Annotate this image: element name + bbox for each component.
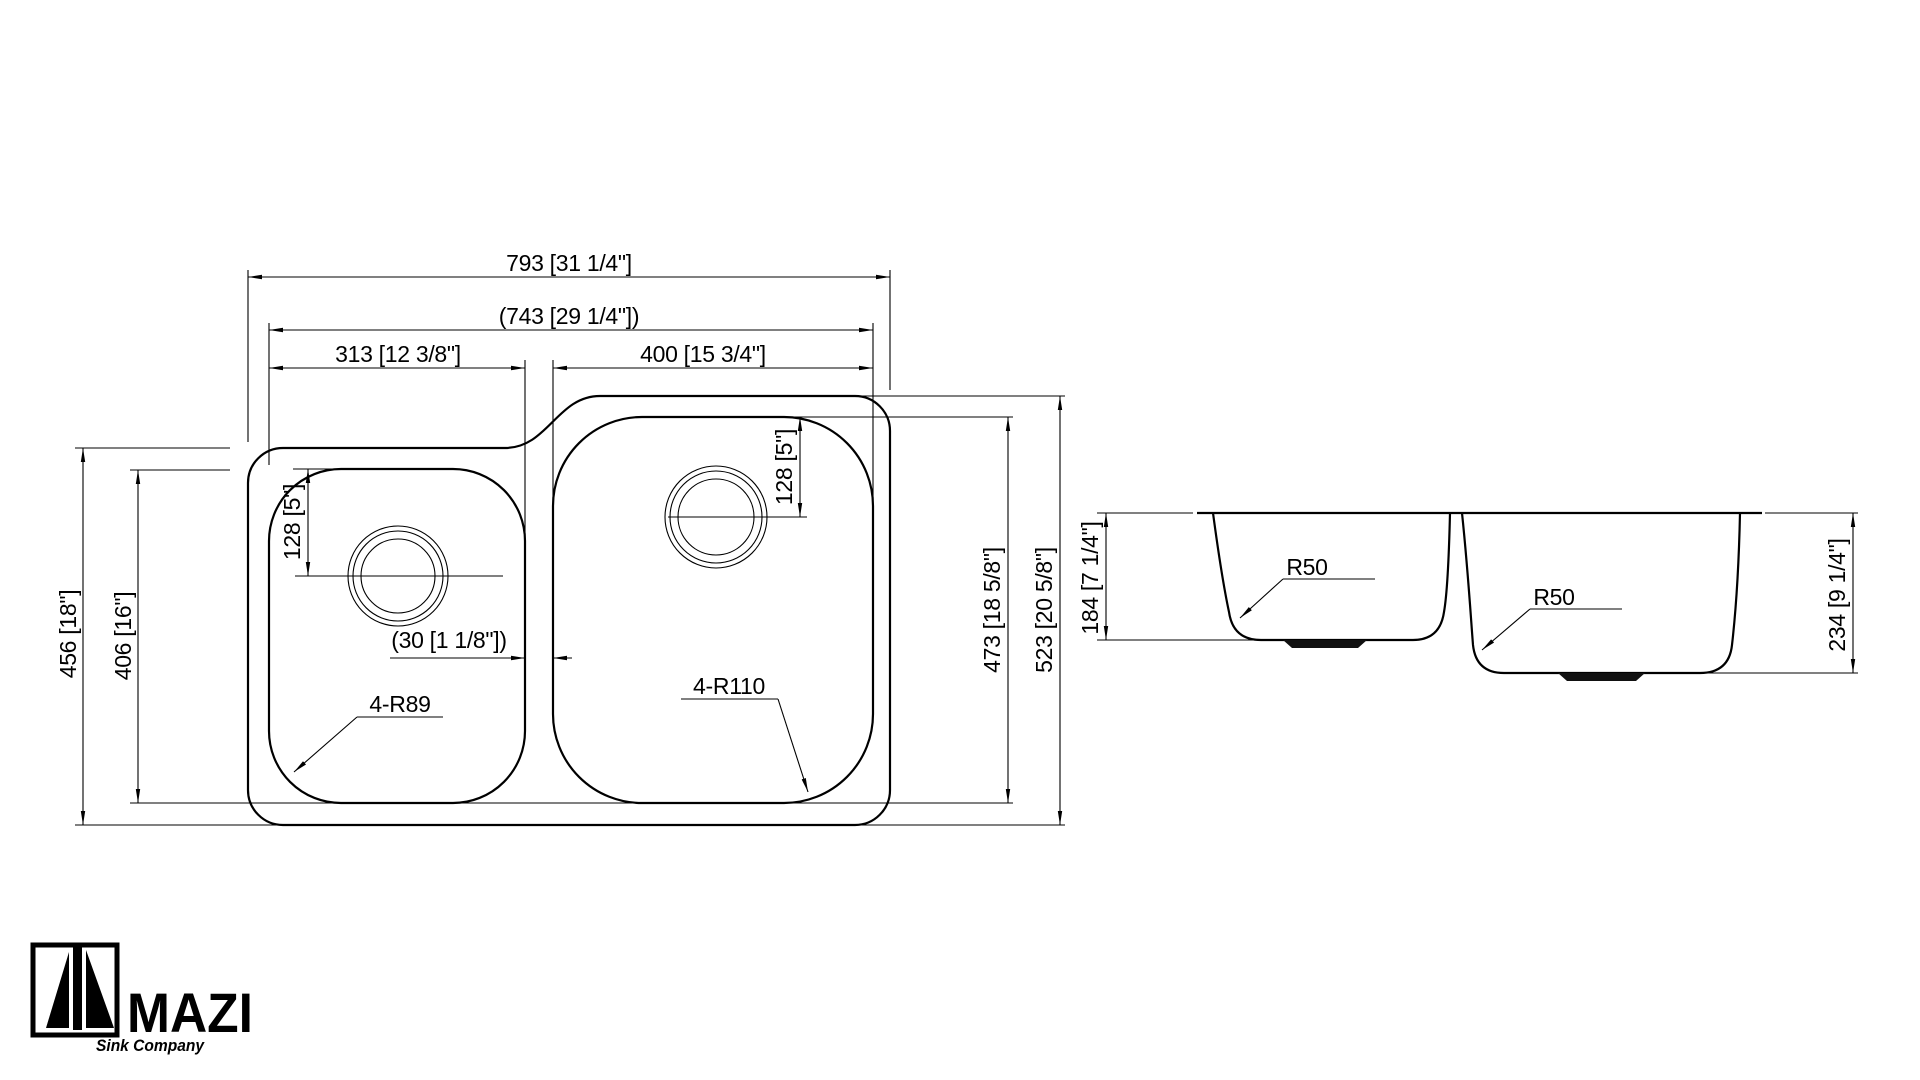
side-large-bowl-drain: [1558, 673, 1645, 681]
large-bowl-rim: [553, 417, 873, 803]
dim-overall-depth: 456 [18"]: [55, 590, 81, 679]
side-extension-lines: [1097, 513, 1858, 673]
leader-4R110: [778, 699, 808, 792]
leader-R50-right: [1482, 609, 1530, 650]
dim-small-bowl-width: 313 [12 3/8"]: [335, 341, 461, 367]
leader-4R89: [294, 717, 357, 772]
side-large-bowl-profile: [1462, 513, 1740, 673]
dim-small-drain-offset: 128 [5"]: [279, 484, 305, 560]
side-small-bowl-drain: [1283, 640, 1367, 648]
leader-R50-left: [1240, 579, 1283, 618]
side-small-bowl-profile: [1213, 513, 1450, 640]
dim-side-small-depth: 184 [7 1/4"]: [1077, 521, 1103, 634]
label-small-bowl-radius: 4-R89: [369, 691, 430, 717]
dim-overall-height: 523 [20 5/8"]: [1031, 547, 1057, 673]
front-dimension-lines: [83, 277, 1060, 825]
dim-large-drain-offset: 128 [5"]: [771, 429, 797, 505]
front-view: 793 [31 1/4"] (743 [29 1/4"]) 313 [12 3/…: [55, 250, 1065, 825]
company-logo: MAZI Sink Company: [33, 945, 253, 1055]
technical-drawing-svg: 793 [31 1/4"] (743 [29 1/4"]) 313 [12 3/…: [0, 0, 1920, 1080]
label-large-bowl-radius: 4-R110: [693, 673, 765, 699]
dim-side-large-depth: 234 [9 1/4"]: [1824, 538, 1850, 651]
dim-small-bowl-depth: 406 [16"]: [110, 592, 136, 681]
drawing-canvas: 793 [31 1/4"] (743 [29 1/4"]) 313 [12 3/…: [0, 0, 1920, 1080]
logo-name: MAZI: [127, 981, 253, 1044]
side-view: 184 [7 1/4"] 234 [9 1/4"] R50 R50: [1077, 513, 1858, 681]
dim-inner-width: (743 [29 1/4"]): [499, 303, 639, 329]
dim-divider-width: (30 [1 1/8"]): [391, 627, 507, 653]
dim-overall-width: 793 [31 1/4"]: [506, 250, 632, 276]
front-extension-lines: [75, 270, 1065, 825]
dim-large-bowl-width: 400 [15 3/4"]: [640, 341, 766, 367]
logo-mark-bar: [73, 947, 82, 1030]
logo-tagline: Sink Company: [96, 1036, 205, 1055]
dim-large-bowl-height: 473 [18 5/8"]: [979, 547, 1005, 673]
side-dimension-lines: [1106, 513, 1853, 673]
label-R50-right: R50: [1533, 584, 1574, 610]
label-R50-left: R50: [1286, 554, 1327, 580]
